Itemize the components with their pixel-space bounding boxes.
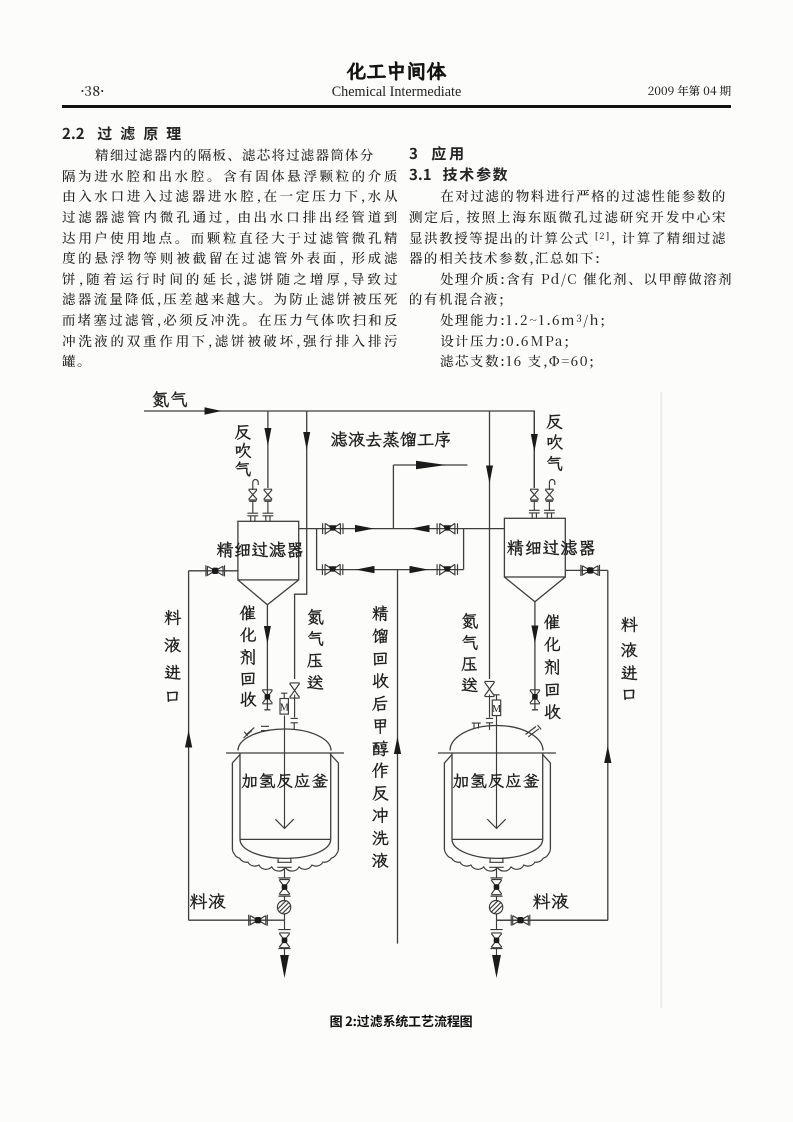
svg-text:料液: 料液 bbox=[533, 891, 569, 914]
svg-text:催: 催 bbox=[240, 601, 257, 624]
svg-text:剂: 剂 bbox=[240, 645, 257, 668]
svg-text:氮: 氮 bbox=[461, 609, 478, 632]
svg-text:收: 收 bbox=[372, 669, 389, 692]
svg-text:料: 料 bbox=[164, 606, 181, 629]
svg-text:液: 液 bbox=[372, 849, 390, 872]
svg-text:气: 气 bbox=[546, 452, 563, 475]
svg-text:加氢反应釜: 加氢反应釜 bbox=[241, 770, 329, 792]
svg-text:口: 口 bbox=[164, 685, 181, 708]
svg-text:醇: 醇 bbox=[372, 736, 390, 759]
svg-text:滤液去蒸馏工序: 滤液去蒸馏工序 bbox=[331, 428, 452, 451]
svg-text:加氢反应釜: 加氢反应釜 bbox=[453, 770, 541, 792]
svg-text:馏: 馏 bbox=[372, 624, 389, 647]
svg-text:催: 催 bbox=[544, 610, 561, 633]
svg-text:气: 气 bbox=[234, 457, 251, 480]
svg-text:料液: 料液 bbox=[190, 891, 226, 914]
svg-text:吹: 吹 bbox=[546, 430, 564, 453]
svg-text:M: M bbox=[280, 703, 289, 714]
svg-text:液: 液 bbox=[164, 633, 182, 656]
svg-text:口: 口 bbox=[621, 683, 638, 706]
svg-text:收: 收 bbox=[544, 700, 561, 723]
svg-text:压: 压 bbox=[307, 649, 324, 672]
svg-text:甲: 甲 bbox=[372, 714, 389, 737]
svg-text:气: 气 bbox=[461, 630, 478, 653]
svg-text:作: 作 bbox=[372, 759, 389, 782]
svg-text:剂: 剂 bbox=[544, 655, 561, 678]
svg-text:送: 送 bbox=[307, 671, 324, 694]
svg-text:进: 进 bbox=[164, 661, 181, 684]
svg-text:后: 后 bbox=[372, 691, 389, 714]
svg-text:反: 反 bbox=[372, 781, 389, 804]
svg-text:收: 收 bbox=[240, 688, 257, 711]
svg-text:氮: 氮 bbox=[307, 605, 324, 628]
svg-text:化: 化 bbox=[240, 623, 257, 646]
svg-text:氮气: 氮气 bbox=[152, 388, 189, 411]
svg-text:M: M bbox=[492, 704, 501, 715]
svg-text:精: 精 bbox=[372, 602, 389, 625]
svg-text:精细过滤器: 精细过滤器 bbox=[216, 538, 303, 561]
svg-text:洗: 洗 bbox=[372, 826, 389, 849]
svg-text:回: 回 bbox=[240, 667, 257, 690]
svg-text:冲: 冲 bbox=[372, 804, 389, 827]
svg-text:进: 进 bbox=[621, 661, 638, 684]
svg-text:压: 压 bbox=[461, 652, 478, 675]
svg-text:回: 回 bbox=[544, 678, 561, 701]
svg-text:化: 化 bbox=[544, 633, 561, 656]
svg-text:精细过滤器: 精细过滤器 bbox=[507, 536, 596, 559]
svg-text:气: 气 bbox=[307, 627, 324, 650]
svg-text:料: 料 bbox=[621, 613, 638, 636]
svg-text:液: 液 bbox=[621, 638, 639, 661]
svg-text:回: 回 bbox=[372, 647, 389, 670]
svg-text:送: 送 bbox=[461, 673, 478, 696]
